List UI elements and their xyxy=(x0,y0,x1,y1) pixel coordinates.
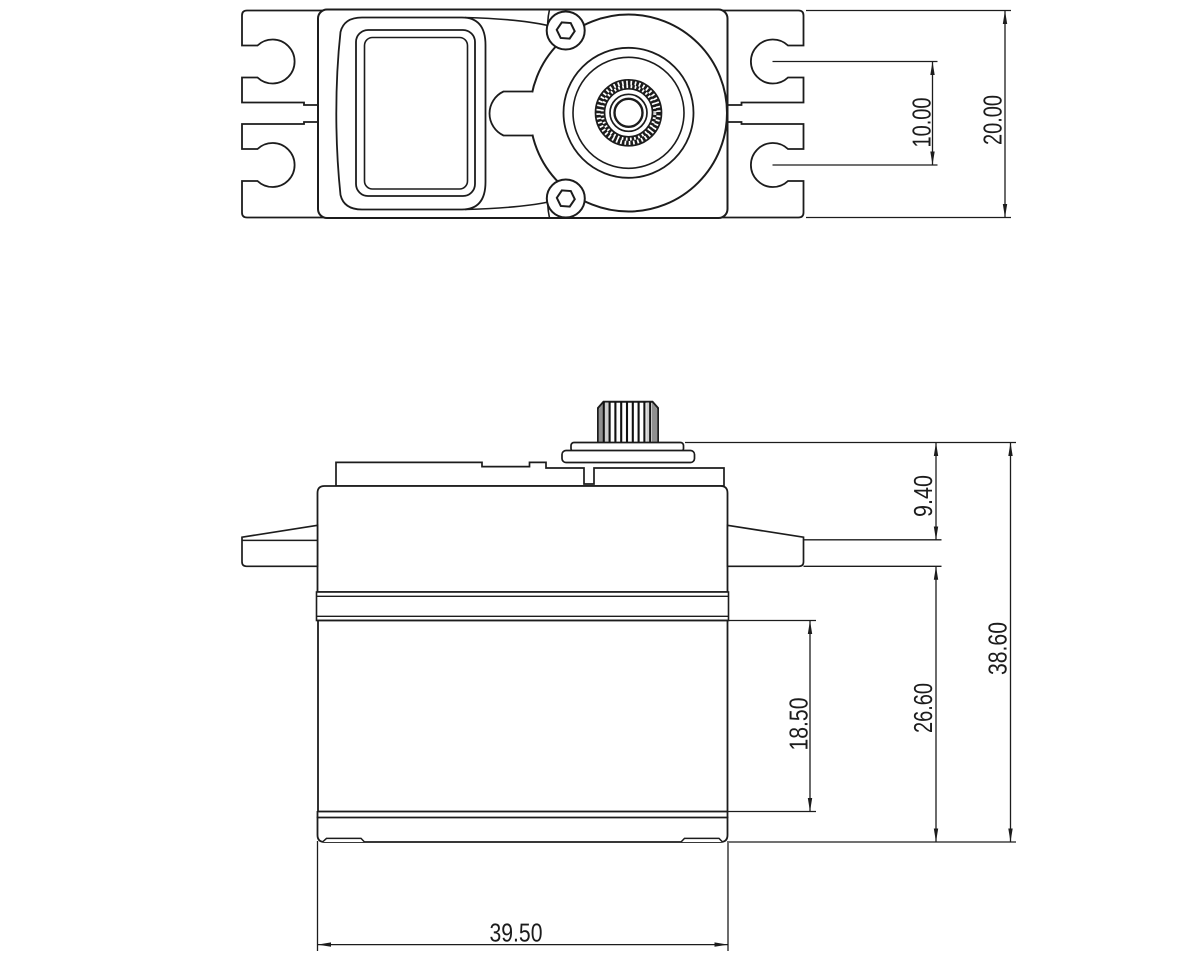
svg-text:10.00: 10.00 xyxy=(907,98,937,148)
svg-text:38.60: 38.60 xyxy=(983,622,1013,675)
svg-text:18.50: 18.50 xyxy=(784,698,814,751)
svg-text:26.60: 26.60 xyxy=(908,683,938,733)
svg-text:20.00: 20.00 xyxy=(978,95,1008,145)
svg-text:9.40: 9.40 xyxy=(908,475,938,517)
svg-text:39.50: 39.50 xyxy=(490,918,543,948)
